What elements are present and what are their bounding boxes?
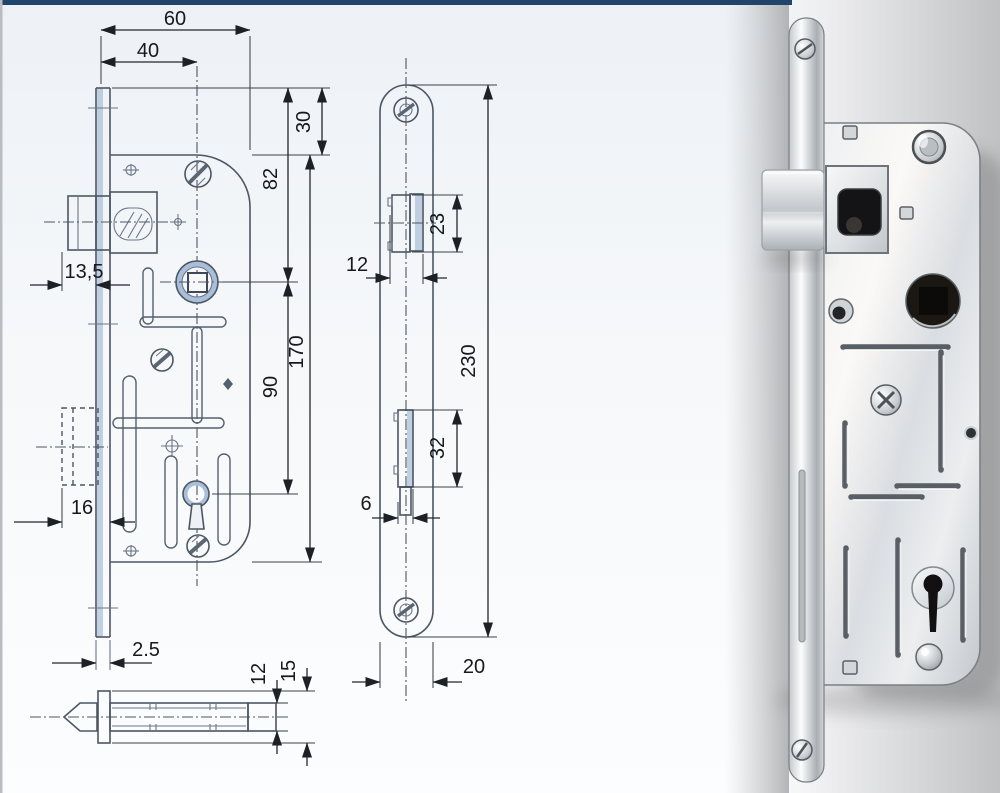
lock-technical-sheet: 60 40 30 82 90 170 13,5 16	[0, 0, 1000, 793]
dim-32-label: 32	[427, 437, 449, 459]
dim-30-label: 30	[293, 111, 315, 133]
dim-90-label: 90	[260, 376, 282, 398]
photo-center-screw	[871, 385, 901, 415]
dim-6-label: 6	[360, 493, 371, 515]
photo-plate-screw-top	[795, 39, 815, 59]
dim-12b-label: 12	[248, 663, 270, 685]
dim-170-label: 170	[286, 335, 308, 368]
dim-82-label: 82	[260, 168, 282, 190]
left-border	[0, 0, 3, 793]
photo-notch-top	[843, 126, 857, 139]
dim-20-label: 20	[463, 656, 485, 678]
dim-2-5-label: 2.5	[132, 639, 160, 661]
dim-23-label: 23	[427, 213, 449, 235]
photo-plate-screw-bottom	[792, 740, 812, 760]
photo-top-screw	[913, 131, 945, 163]
photo-small-hole	[829, 299, 853, 323]
photo-notch-mid	[900, 207, 913, 219]
lock-photo	[762, 18, 1000, 782]
photo-cylinder-hole	[906, 274, 960, 328]
dim-230-label: 230	[458, 344, 480, 377]
dim-15b-label: 15	[278, 660, 300, 682]
photo-plate-slot	[799, 470, 805, 642]
photo-pin-hole	[965, 427, 977, 439]
faceplate-shade	[97, 88, 103, 637]
photo-follower-boss	[826, 166, 888, 253]
sheet-canvas: 60 40 30 82 90 170 13,5 16	[0, 0, 1000, 793]
dim-16-label: 16	[71, 497, 93, 519]
photo-rivet	[916, 644, 942, 670]
dim-13-5-label: 13,5	[65, 261, 104, 283]
photo-plate-shadow-band	[725, 0, 789, 793]
dim-12s-label: 12	[346, 254, 368, 276]
dim-40-label: 40	[137, 40, 159, 62]
top-bar	[0, 0, 792, 5]
photo-faceplate	[789, 18, 824, 782]
dim-60-label: 60	[164, 8, 186, 30]
photo-notch-bottom	[843, 661, 857, 674]
